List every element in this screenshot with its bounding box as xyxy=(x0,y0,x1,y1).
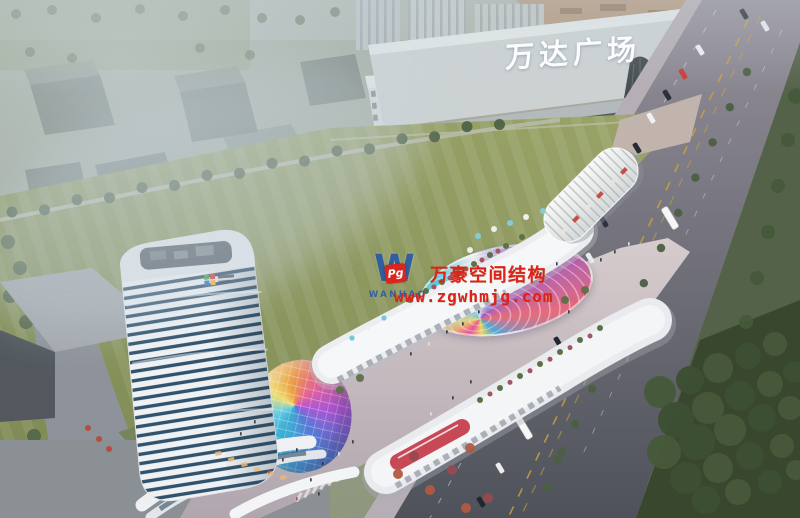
retail-strip-lower xyxy=(386,320,652,486)
watermark-url: www.zgwhmjg.com xyxy=(394,287,554,306)
aerial-rendering-scene: 万达广场 W Pg WANHAO 万豪空间结构 www.zgwhmjg.com xyxy=(0,0,800,518)
watermark-badge-icon: Pg xyxy=(384,263,407,284)
watermark-title: 万豪空间结构 xyxy=(430,261,547,287)
tower xyxy=(118,227,281,503)
